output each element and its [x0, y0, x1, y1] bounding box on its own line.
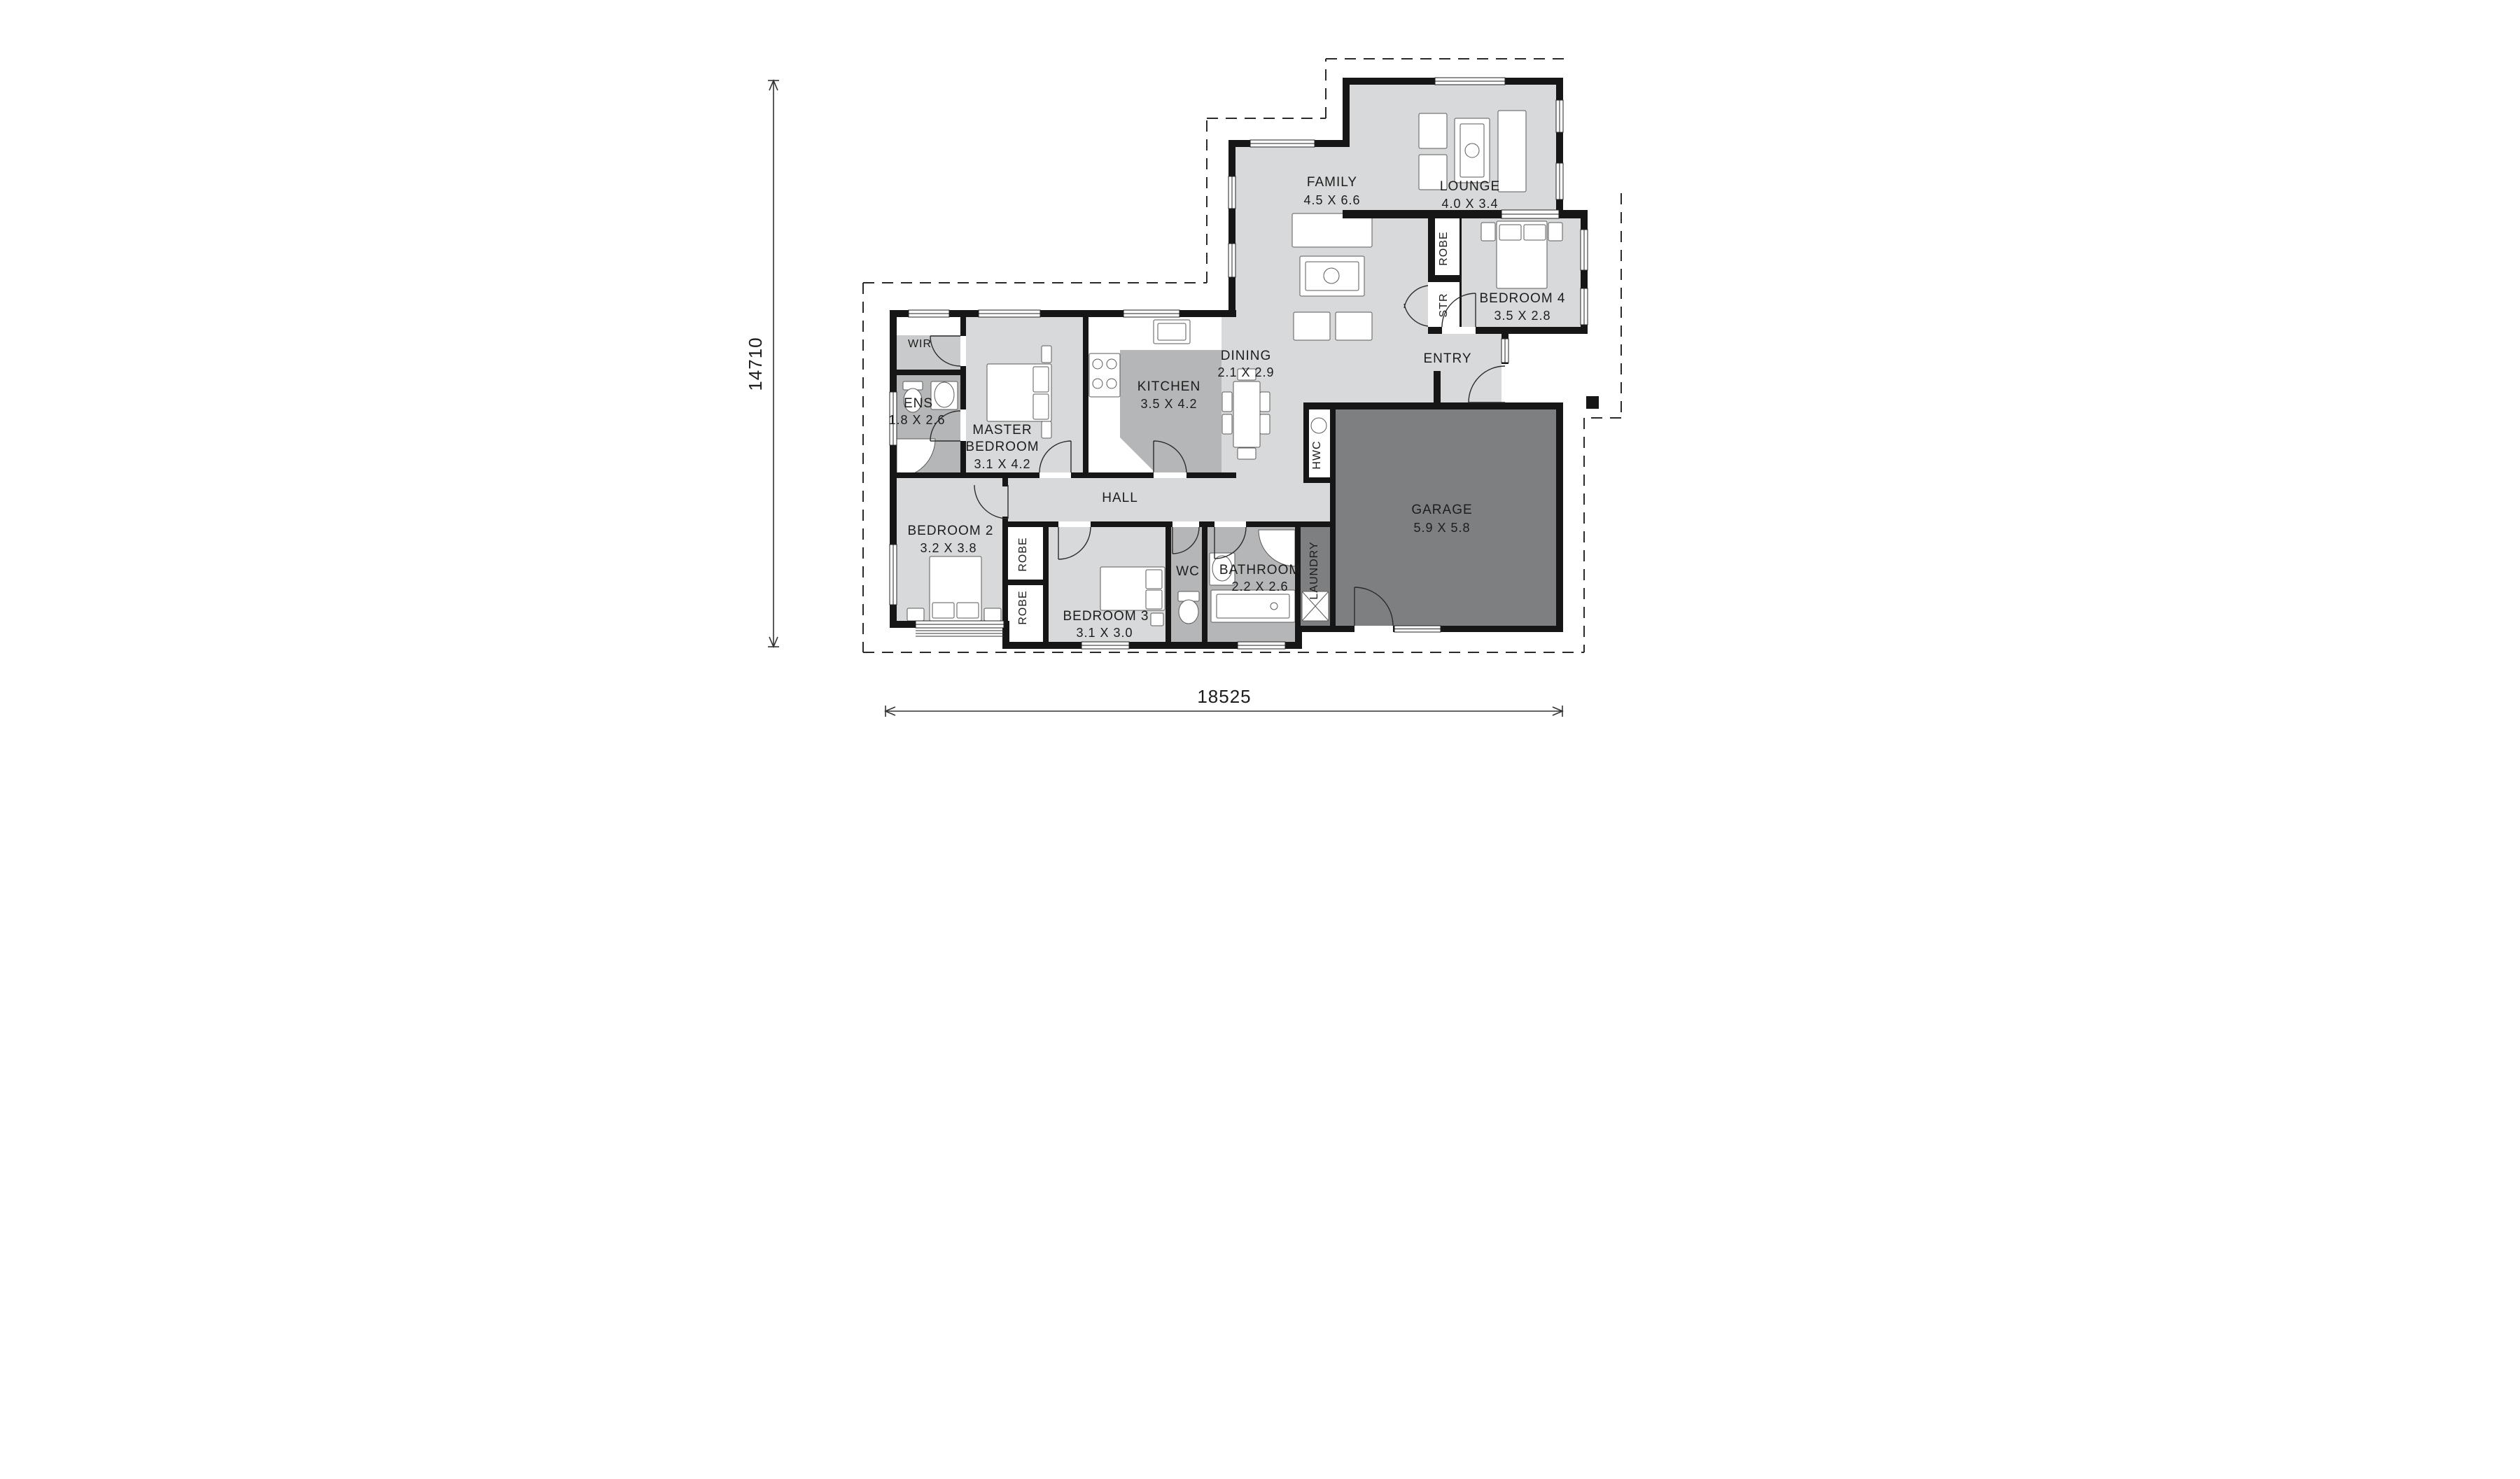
door-opening — [1214, 521, 1246, 527]
door-opening — [1058, 521, 1091, 527]
nightstand — [1151, 613, 1163, 626]
pillow — [1033, 394, 1049, 419]
hwc-cylinder — [1311, 418, 1326, 433]
room-label-master-line1: MASTER — [972, 423, 1032, 437]
door-opening — [1154, 472, 1186, 478]
door-opening — [1039, 472, 1071, 478]
room-label-dining: DINING — [1221, 349, 1272, 363]
closet-label-robe-bedroom4: ROBE — [1438, 231, 1450, 265]
room-dims-kitchen: 3.5 X 4.2 — [1140, 397, 1197, 411]
wall — [1556, 406, 1563, 632]
wall — [1043, 527, 1049, 649]
pillow — [957, 603, 979, 618]
room-dims-lounge: 4.0 X 3.4 — [1441, 197, 1498, 211]
wall — [1586, 396, 1599, 409]
room-dims-garage: 5.9 X 5.8 — [1413, 521, 1470, 535]
burner — [1093, 359, 1102, 369]
bathtub-inner — [1217, 594, 1289, 618]
burner — [1107, 359, 1116, 369]
room-label-lounge: LOUNGE — [1440, 179, 1500, 194]
floor-plan: FAMILY 4.5 X 6.6 LOUNGE 4.0 X 3.4 BEDROO… — [630, 0, 1890, 739]
table-decor — [1465, 143, 1479, 157]
wall — [1008, 580, 1049, 585]
wall — [1303, 409, 1309, 483]
pillow — [1033, 367, 1049, 392]
armchair — [1336, 312, 1372, 340]
wall — [890, 370, 960, 375]
closet-label-robe-bedroom3: ROBE — [1017, 590, 1029, 624]
dining-chair — [1260, 392, 1270, 412]
wall — [1428, 275, 1462, 282]
hall-floor — [1002, 478, 1336, 527]
room-dims-dining: 2.1 X 2.9 — [1217, 365, 1274, 379]
wall — [1002, 478, 1008, 486]
door-opening — [1354, 626, 1393, 632]
nightstand — [1042, 421, 1051, 438]
tub-drain — [1270, 603, 1277, 610]
armchair — [1294, 312, 1330, 340]
room-label-entry: ENTRY — [1423, 351, 1471, 366]
room-label-garage: GARAGE — [1411, 503, 1472, 517]
room-label-wc: WC — [1176, 564, 1200, 579]
nightstand — [1548, 223, 1562, 241]
room-label-laundry: LAUNDRY — [1308, 541, 1320, 599]
burner — [1107, 379, 1116, 388]
room-dims-bedroom2: 3.2 X 3.8 — [920, 541, 976, 555]
sofa-family — [1292, 213, 1372, 247]
kitchen-sink-inner — [1158, 323, 1186, 340]
dining-chair — [1260, 414, 1270, 434]
nightstand — [984, 608, 1001, 621]
room-label-master-line2: BEDROOM — [965, 440, 1039, 454]
room-label-ens: ENS — [904, 396, 933, 411]
nightstand — [1042, 346, 1051, 363]
door-opening — [1172, 521, 1199, 527]
wall — [1459, 217, 1462, 327]
floor-plan-canvas: FAMILY 4.5 X 6.6 LOUNGE 4.0 X 3.4 BEDROO… — [630, 0, 1890, 739]
pillow — [1146, 590, 1162, 609]
room-label-bedroom2: BEDROOM 2 — [907, 524, 993, 538]
door-opening — [1428, 282, 1435, 327]
pillow — [1524, 225, 1546, 240]
wall — [1008, 521, 1330, 527]
sofa-lounge — [1498, 111, 1526, 192]
wall — [1295, 527, 1301, 649]
ens-basin — [934, 382, 954, 407]
room-dims-bathroom: 2.2 X 2.6 — [1231, 580, 1288, 594]
wall — [1165, 527, 1171, 649]
wall — [1303, 477, 1336, 483]
dining-chair — [1222, 414, 1232, 434]
pillow — [1146, 570, 1162, 589]
armchair — [1419, 113, 1447, 148]
room-dims-family: 4.5 X 6.6 — [1303, 193, 1360, 207]
overall-width-dimension: 18525 — [1197, 686, 1251, 707]
table-decor — [1324, 268, 1339, 283]
overall-height-dimension: 14710 — [745, 337, 766, 391]
room-label-kitchen: KITCHEN — [1137, 379, 1200, 394]
room-dims-ens: 1.8 X 2.6 — [888, 413, 945, 427]
room-dims-bedroom4: 3.5 X 2.8 — [1494, 309, 1550, 323]
closet-label-hwc: HWC — [1311, 440, 1323, 469]
room-label-bedroom4: BEDROOM 4 — [1479, 291, 1565, 306]
room-label-hall: HALL — [1102, 491, 1138, 505]
wall — [1343, 78, 1350, 147]
wall — [1434, 371, 1441, 402]
wall — [1303, 402, 1563, 409]
wall — [1330, 409, 1336, 626]
wall — [1228, 140, 1235, 317]
nightstand — [907, 608, 924, 621]
dining-chair — [1238, 448, 1256, 459]
toilet-bowl-wc — [1179, 600, 1198, 624]
room-dims-bedroom3: 3.1 X 3.0 — [1076, 626, 1133, 640]
wall — [1083, 317, 1088, 478]
door-opening — [960, 336, 966, 366]
wir-shelf — [897, 317, 960, 335]
room-label-bedroom3: BEDROOM 3 — [1063, 609, 1149, 624]
pillow — [932, 603, 954, 618]
dining-chair — [1222, 392, 1232, 412]
door-opening — [1501, 364, 1508, 402]
room-dims-master: 3.1 X 4.2 — [974, 457, 1030, 471]
room-label-family: FAMILY — [1307, 175, 1357, 190]
closet-label-robe-bedroom2: ROBE — [1017, 537, 1029, 571]
wall — [1202, 527, 1207, 649]
room-label-bathroom: BATHROOM — [1219, 563, 1301, 577]
door-opening — [960, 409, 966, 441]
dining-table — [1233, 381, 1260, 447]
nightstand — [1481, 223, 1495, 241]
stove — [1089, 353, 1120, 397]
closet-label-str: STR — [1438, 293, 1450, 318]
wall — [1002, 517, 1008, 621]
room-label-wir: WIR — [908, 338, 932, 350]
burner — [1093, 379, 1102, 388]
pillow — [1499, 225, 1521, 240]
door-opening — [1442, 327, 1476, 334]
